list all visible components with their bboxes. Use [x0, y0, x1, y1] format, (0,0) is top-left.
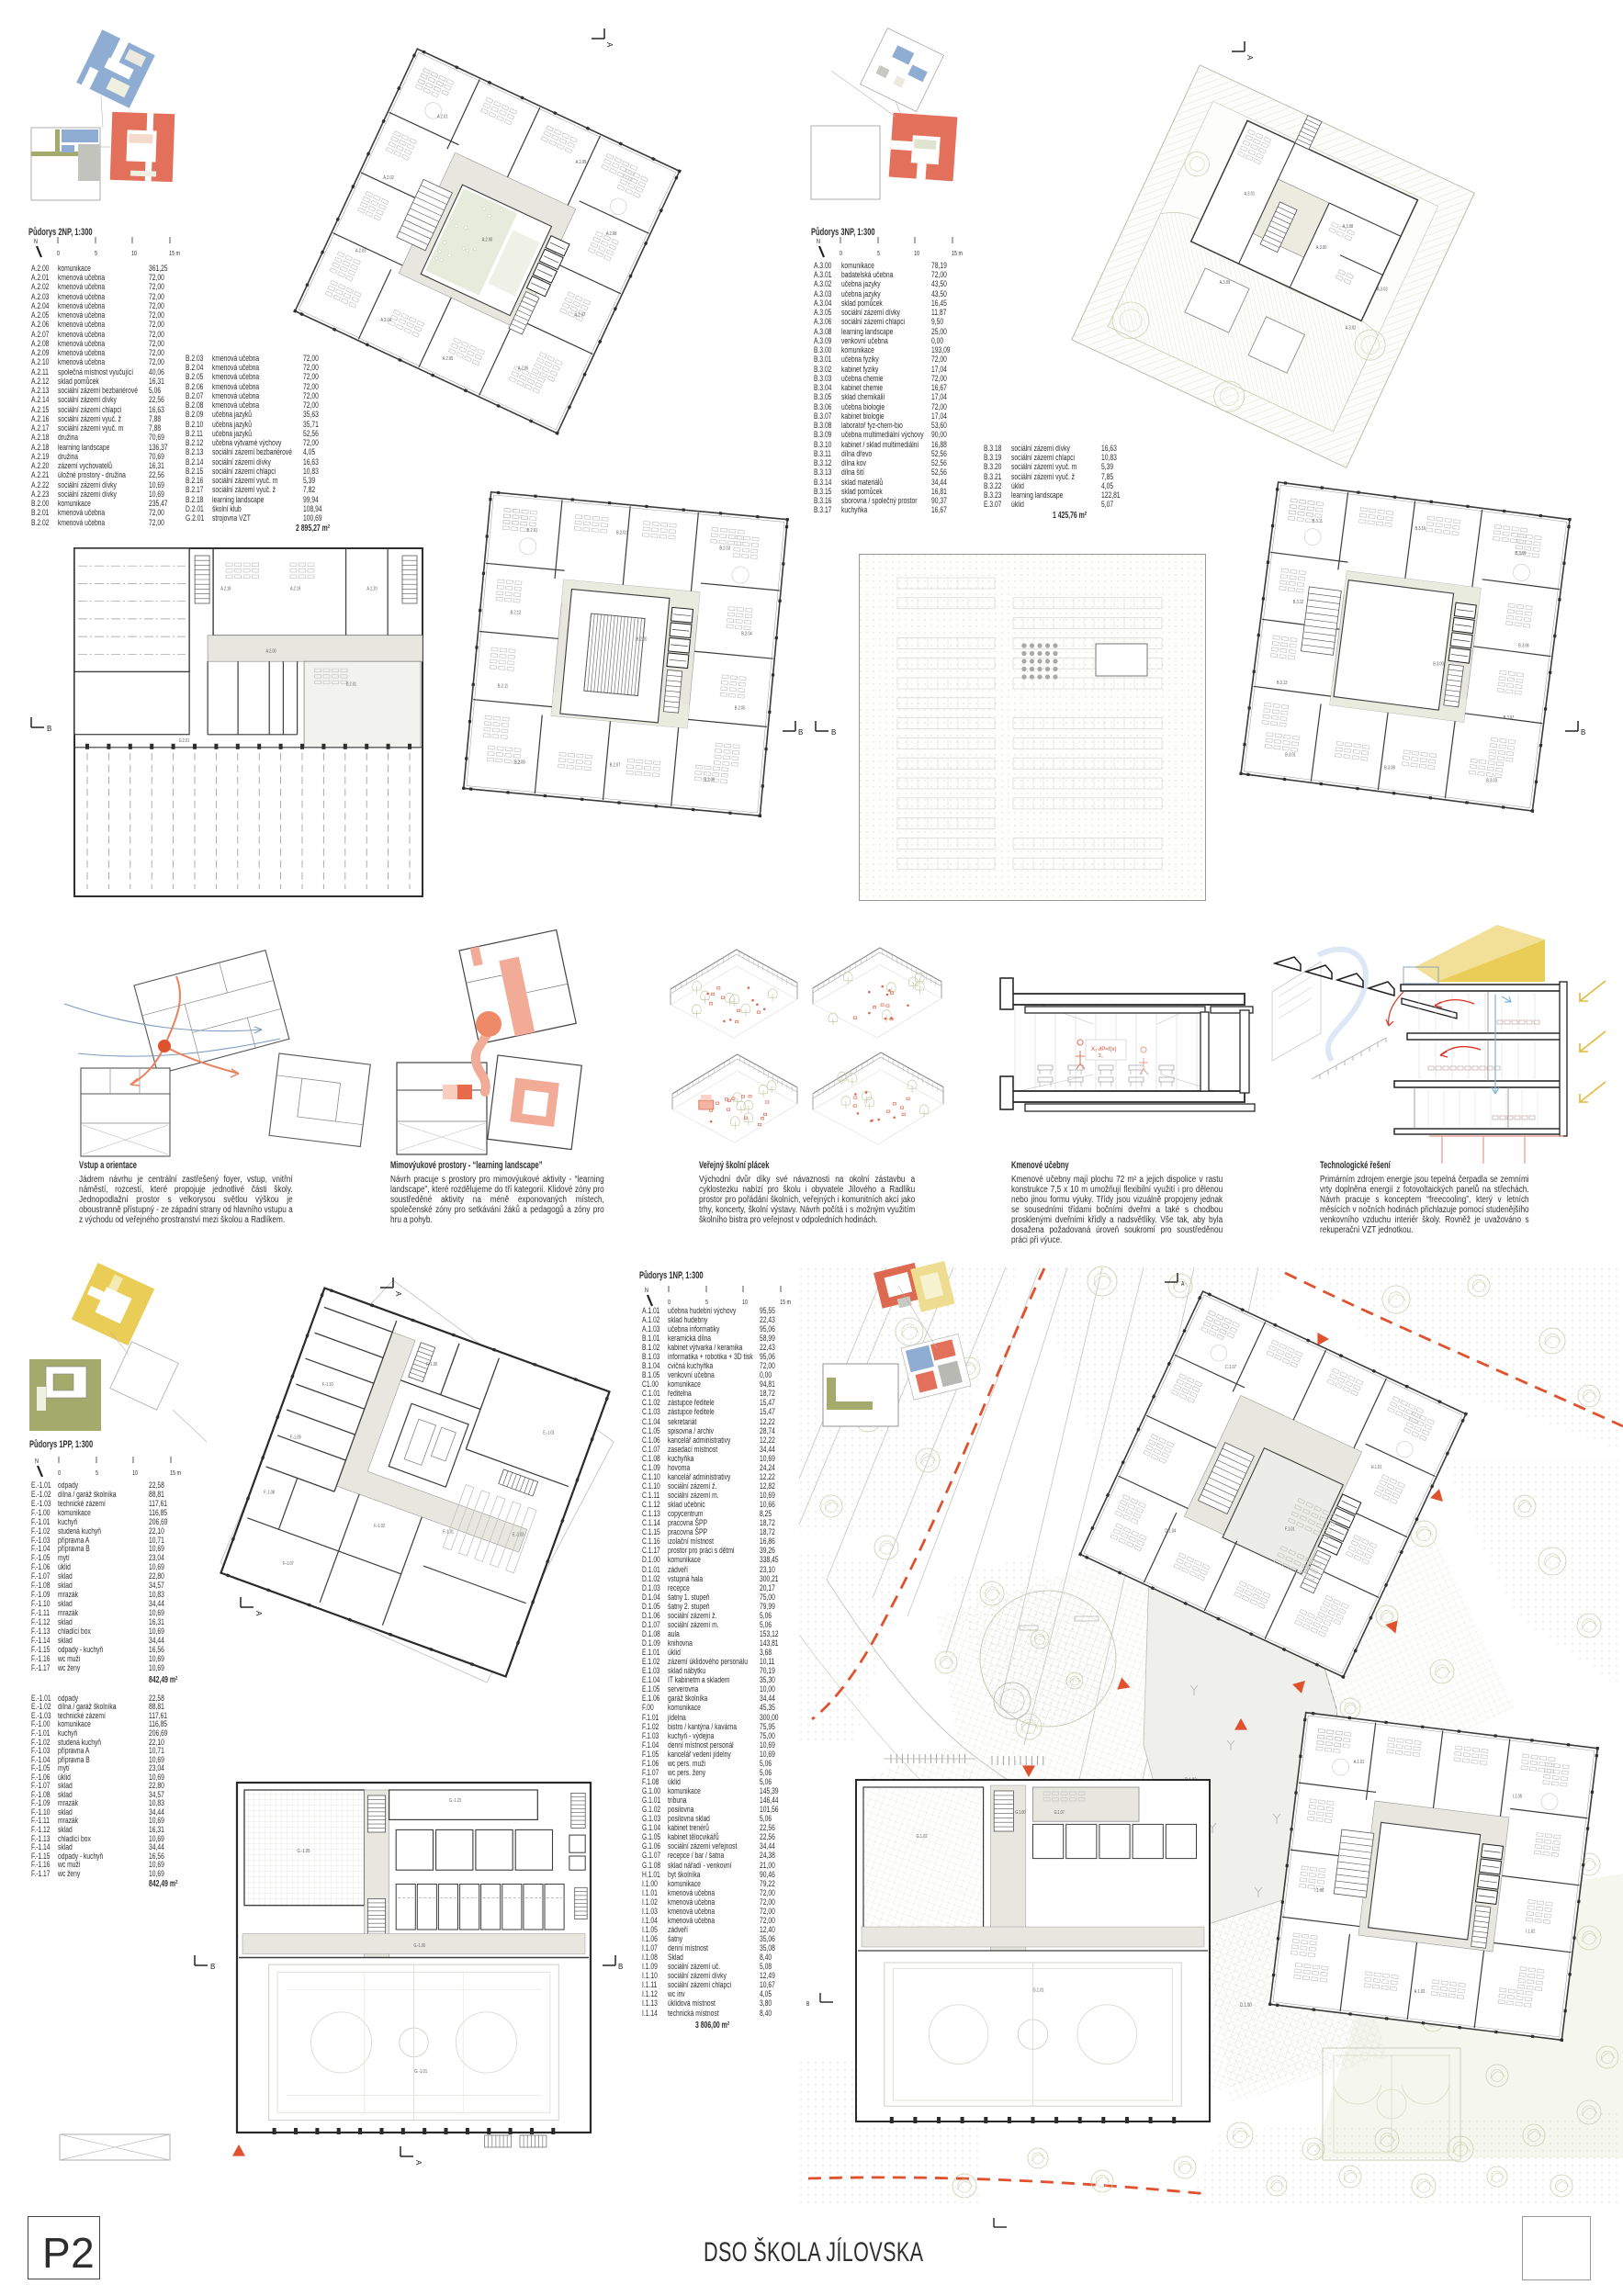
svg-text:10: 10 [742, 1299, 748, 1306]
svg-text:B.3.09: B.3.09 [1516, 550, 1527, 557]
svg-text:B: B [618, 1963, 623, 1971]
svg-text:A.2.08: A.2.08 [605, 231, 616, 237]
svg-text:B.2.07: B.2.07 [610, 762, 621, 769]
svg-text:B.2.05: B.2.05 [735, 705, 746, 712]
svg-text:N: N [34, 238, 38, 245]
svg-text:A.1.01: A.1.01 [1354, 1760, 1365, 1766]
svg-text:G.2.01: G.2.01 [179, 737, 190, 743]
svg-text:D.1.04: D.1.04 [1165, 1528, 1176, 1535]
svg-text:I.1.05: I.1.05 [1513, 1794, 1522, 1800]
svg-text:B.3.01: B.3.01 [1285, 752, 1296, 759]
svg-text:B.3.12: B.3.12 [1293, 599, 1304, 605]
svg-text:F.-1.00: F.-1.00 [426, 1362, 437, 1367]
svg-text:A: A [394, 1291, 402, 1297]
svg-text:N: N [817, 238, 820, 245]
svg-text:E.-1.01: E.-1.01 [543, 1430, 555, 1435]
svg-text:B.3.11: B.3.11 [1313, 519, 1324, 525]
svg-text:A.2.02: A.2.02 [383, 174, 394, 181]
svg-text:F.-1.01: F.-1.01 [443, 1529, 454, 1535]
svg-text:10: 10 [914, 250, 919, 257]
svg-text:F.-1.08: F.-1.08 [264, 1490, 275, 1495]
svg-text:G.-1.23: G.-1.23 [449, 1797, 461, 1803]
svg-text:F.-1.10: F.-1.10 [322, 1382, 333, 1388]
svg-text:D.1.00: D.1.00 [1240, 2002, 1252, 2009]
svg-text:E.-1.03: E.-1.03 [513, 1532, 524, 1537]
svg-text:B: B [831, 728, 836, 737]
svg-text:A.2.05: A.2.05 [442, 355, 453, 362]
svg-text:X₂·∂P=f(x): X₂·∂P=f(x) [1091, 1046, 1116, 1052]
svg-text:G.1.00: G.1.00 [1015, 1810, 1026, 1816]
svg-text:B.3.07: B.3.07 [1504, 715, 1515, 721]
svg-text:B.2.12: B.2.12 [511, 610, 522, 616]
svg-text:I.1.02: I.1.02 [1526, 1929, 1535, 1935]
svg-text:15 m: 15 m [170, 1469, 181, 1477]
svg-text:15 m: 15 m [952, 250, 963, 257]
svg-text:A.2.20: A.2.20 [366, 586, 378, 591]
svg-text:A: A [1245, 55, 1254, 61]
svg-text:B.3.03: B.3.03 [1486, 778, 1497, 784]
svg-text:A.3.00: A.3.00 [1316, 244, 1327, 251]
svg-text:A.3.01: A.3.01 [1244, 191, 1255, 197]
svg-text:B.3.00: B.3.00 [1433, 661, 1444, 668]
svg-text:B.2.06: B.2.06 [704, 777, 715, 783]
svg-text:B.2.00: B.2.00 [637, 636, 648, 643]
svg-text:D.2.01: D.2.01 [346, 681, 357, 687]
svg-text:A.2.04: A.2.04 [380, 317, 391, 323]
svg-text:5: 5 [877, 250, 880, 257]
svg-text:B.2.04: B.2.04 [741, 631, 752, 637]
svg-text:H.1.01: H.1.01 [1371, 1464, 1382, 1470]
svg-text:B: B [1581, 728, 1585, 737]
svg-text:10: 10 [131, 250, 137, 257]
svg-text:A.3.09: A.3.09 [1220, 280, 1231, 287]
svg-text:F.1.01: F.1.01 [1285, 1526, 1295, 1533]
svg-text:0: 0 [57, 250, 60, 257]
svg-text:B.2.01: B.2.01 [527, 527, 538, 534]
svg-text:B.3.06: B.3.06 [1518, 643, 1529, 649]
svg-text:G.1.07: G.1.07 [1054, 1810, 1065, 1816]
svg-text:10: 10 [132, 1469, 138, 1477]
svg-text:N: N [35, 1458, 39, 1465]
svg-text:B.3.13: B.3.13 [1277, 680, 1288, 686]
svg-text:5: 5 [96, 1469, 98, 1477]
svg-text:G.-1.00: G.-1.00 [414, 1943, 426, 1949]
svg-text:A.3.02: A.3.02 [1346, 325, 1357, 332]
svg-text:A.2.06: A.2.06 [517, 365, 528, 371]
svg-text:A.2.01: A.2.01 [436, 113, 447, 119]
svg-text:B: B [798, 728, 803, 737]
svg-text:0: 0 [58, 1469, 61, 1477]
svg-text:F.-1.07: F.-1.07 [283, 1561, 294, 1567]
svg-text:0: 0 [840, 250, 842, 257]
svg-text:N: N [645, 1287, 648, 1294]
svg-text:B: B [210, 1963, 215, 1971]
svg-text:A.2.00: A.2.00 [481, 236, 492, 242]
svg-text:G.1.01: G.1.01 [1033, 1987, 1044, 1994]
svg-text:A.2.00: A.2.00 [266, 648, 277, 654]
svg-text:B.2.02: B.2.02 [616, 530, 627, 536]
svg-text:A.2.09: A.2.09 [575, 159, 586, 165]
svg-text:A.2.03: A.2.03 [355, 248, 366, 254]
svg-text:B: B [806, 2000, 809, 2008]
svg-text:A.2.07: A.2.07 [574, 311, 585, 318]
svg-text:B.2.08: B.2.08 [514, 760, 525, 766]
svg-text:5: 5 [95, 250, 97, 257]
svg-text:A.2.19: A.2.19 [290, 586, 301, 591]
svg-text:G.1.02: G.1.02 [917, 1834, 928, 1840]
svg-text:15 m: 15 m [780, 1299, 791, 1306]
svg-text:Σ₁: Σ₁ [1099, 1053, 1103, 1059]
svg-text:A.3.08: A.3.08 [1343, 223, 1354, 230]
svg-text:G.-1.05: G.-1.05 [298, 1849, 310, 1855]
svg-text:A.2.18: A.2.18 [220, 586, 231, 591]
svg-text:C.1.07: C.1.07 [1225, 1364, 1236, 1370]
svg-text:B.2.11: B.2.11 [498, 683, 509, 690]
svg-text:F.-1.09: F.-1.09 [290, 1435, 301, 1440]
svg-text:A: A [414, 2160, 423, 2166]
svg-text:A.1.03: A.1.03 [1414, 1988, 1426, 1995]
svg-text:B.3.08: B.3.08 [1384, 765, 1395, 771]
svg-text:B.2.03: B.2.03 [719, 546, 730, 552]
svg-text:F.-1.02: F.-1.02 [374, 1523, 385, 1528]
svg-text:A: A [254, 1611, 263, 1616]
svg-text:A.3.03: A.3.03 [1377, 287, 1388, 293]
svg-text:B: B [47, 725, 51, 733]
svg-text:I.1.00: I.1.00 [1314, 1887, 1324, 1894]
svg-text:B.3.16: B.3.16 [1414, 525, 1426, 532]
svg-text:A: A [605, 42, 614, 48]
svg-text:15 m: 15 m [169, 250, 180, 257]
svg-text:G.-1.01: G.-1.01 [414, 2069, 427, 2076]
